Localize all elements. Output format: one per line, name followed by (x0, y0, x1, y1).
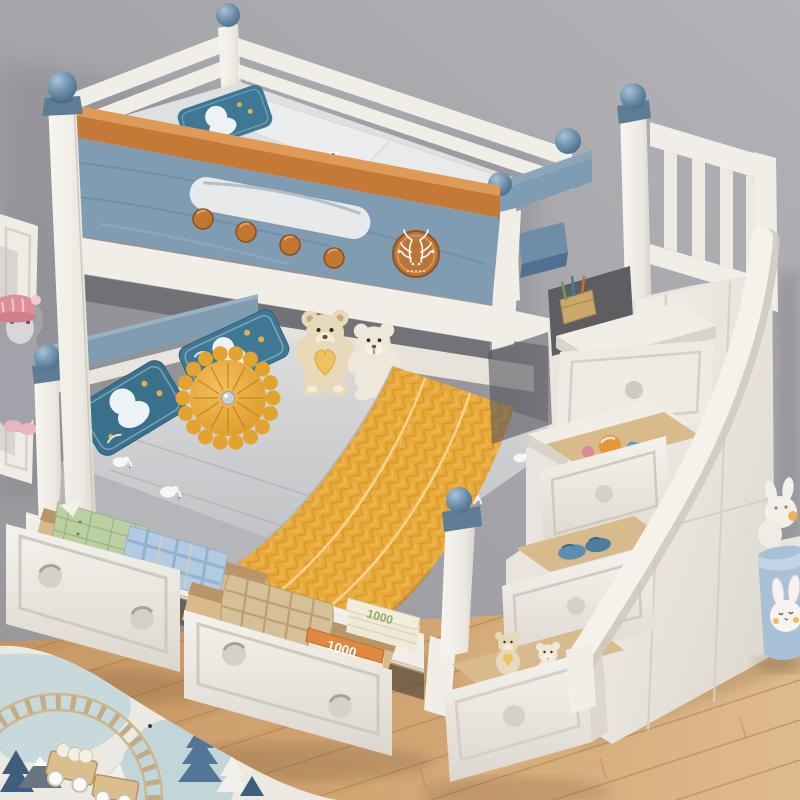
finial-foot-rear (555, 128, 581, 154)
finial-corner (47, 71, 77, 101)
bunk-bed-product-photo: 1000 1000 (0, 0, 800, 800)
deer-antler-badge-icon (393, 230, 439, 277)
handrail-newel (566, 642, 596, 714)
finial-headboard (34, 344, 60, 370)
finial-stairs (620, 83, 646, 109)
finial-rear (216, 3, 240, 27)
finial-foot-post (446, 487, 472, 513)
